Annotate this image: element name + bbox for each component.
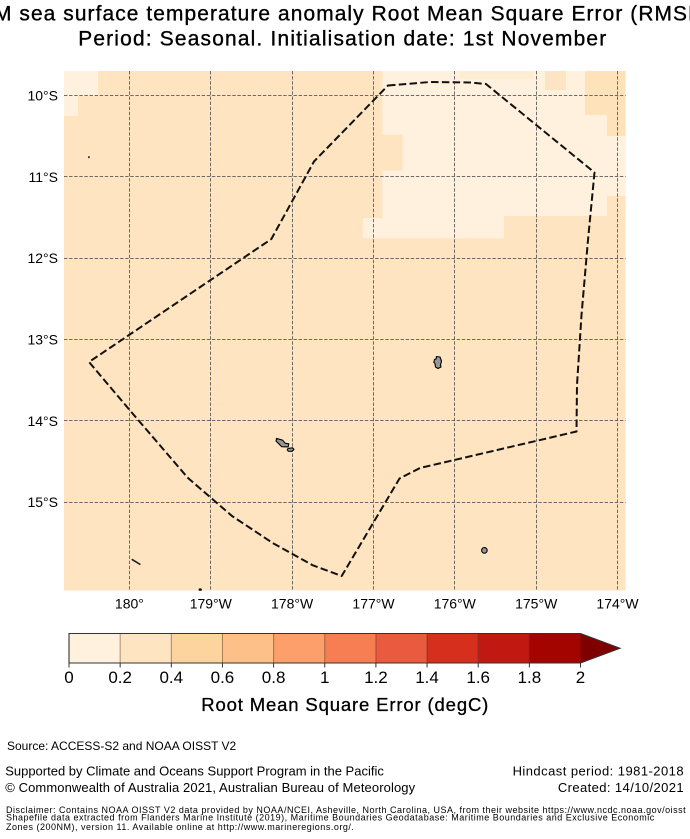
- svg-text:1.8: 1.8: [518, 668, 542, 687]
- svg-text:© Commonwealth of Australia 20: © Commonwealth of Australia 2021, Austra…: [5, 780, 415, 795]
- svg-text:Created: 14/10/2021: Created: 14/10/2021: [558, 780, 684, 795]
- svg-text:Root Mean Square Error (degC): Root Mean Square Error (degC): [201, 694, 489, 715]
- svg-text:10°S: 10°S: [27, 87, 58, 103]
- svg-text:Hindcast period: 1981-2018: Hindcast period: 1981-2018: [513, 763, 684, 778]
- svg-text:178°W: 178°W: [271, 596, 314, 612]
- svg-text:Supported by Climate and Ocean: Supported by Climate and Oceans Support …: [5, 763, 384, 778]
- svg-text:1.2: 1.2: [364, 668, 388, 687]
- svg-text:Zones (200NM), version 11. Ava: Zones (200NM), version 11. Available onl…: [6, 822, 354, 832]
- svg-text:176°W: 176°W: [434, 596, 477, 612]
- svg-text:0.2: 0.2: [108, 668, 132, 687]
- svg-text:11°S: 11°S: [29, 169, 58, 185]
- svg-text:175°W: 175°W: [515, 596, 558, 612]
- svg-text:13°S: 13°S: [27, 332, 58, 348]
- svg-text:1.6: 1.6: [466, 668, 490, 687]
- svg-text:1: 1: [320, 668, 329, 687]
- svg-text:0: 0: [64, 668, 73, 687]
- svg-text:M sea surface temperature anom: M sea surface temperature anomaly Root M…: [0, 3, 690, 26]
- svg-text:1.4: 1.4: [415, 668, 439, 687]
- svg-text:14°S: 14°S: [27, 413, 58, 429]
- svg-text:180°: 180°: [115, 596, 144, 612]
- svg-text:174°W: 174°W: [596, 596, 639, 612]
- svg-text:179°W: 179°W: [190, 596, 233, 612]
- svg-text:0.8: 0.8: [262, 668, 286, 687]
- svg-text:Source: ACCESS-S2 and NOAA OIS: Source: ACCESS-S2 and NOAA OISST V2: [7, 739, 237, 753]
- svg-text:0.4: 0.4: [159, 668, 183, 687]
- svg-text:177°W: 177°W: [352, 596, 395, 612]
- svg-text:2: 2: [576, 668, 585, 687]
- svg-text:0.6: 0.6: [211, 668, 235, 687]
- svg-text:12°S: 12°S: [27, 250, 58, 266]
- svg-text:15°S: 15°S: [27, 494, 58, 510]
- svg-text:Period: Seasonal. Initialisati: Period: Seasonal. Initialisation date: 1…: [78, 27, 607, 50]
